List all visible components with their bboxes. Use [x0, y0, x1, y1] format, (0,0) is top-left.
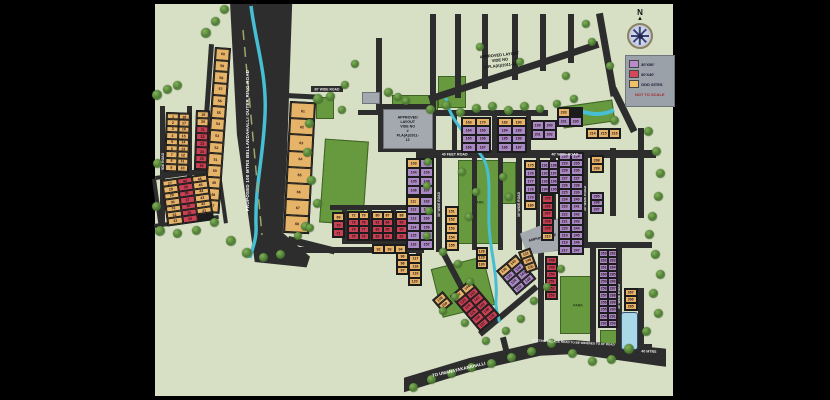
- plot-number: 27: [168, 181, 173, 186]
- plot-number: 289: [610, 300, 616, 304]
- plot-number: 87: [386, 213, 390, 217]
- plot-number: 178: [528, 187, 534, 191]
- plot-number: 118: [412, 264, 418, 268]
- plot-number: 91: [399, 234, 403, 238]
- plot-cell: 66: [286, 183, 311, 200]
- plot-number: 250: [549, 272, 555, 276]
- plot-number: 56: [217, 99, 221, 103]
- plot-cell: 76: [359, 233, 370, 240]
- plot-number: 72: [351, 213, 355, 217]
- tree-icon: [656, 169, 665, 178]
- plot-number: 189: [516, 129, 522, 133]
- plot-cell: 198: [549, 161, 558, 169]
- plot-cluster-q3: 205206207208209210: [541, 194, 554, 241]
- plot-cell: 206: [542, 203, 553, 211]
- plot-number: 18: [182, 115, 186, 119]
- plot-cell: 261: [599, 264, 608, 271]
- plot-cell: 215: [598, 129, 609, 138]
- compass-dial-icon: [627, 23, 653, 49]
- plot-cluster-m4: 151152153154155: [445, 206, 459, 251]
- tree-icon: [517, 315, 525, 323]
- plot-number: 190: [516, 120, 522, 124]
- plot-cell: 103: [407, 159, 420, 168]
- plot-number: 248: [549, 258, 555, 262]
- tree-icon: [654, 309, 663, 318]
- plot-cell: 111: [407, 197, 420, 206]
- tree-icon: [451, 293, 459, 301]
- plot-number: 202: [547, 132, 553, 136]
- plot-number: 244: [574, 226, 580, 230]
- plot-cell: 290: [608, 306, 617, 313]
- plot-cell: 153: [446, 224, 458, 233]
- plot-number: 92: [376, 247, 380, 251]
- tree-icon: [155, 226, 165, 236]
- plot-cell: 217: [559, 246, 571, 253]
- tree-icon: [570, 95, 578, 103]
- plot-number: 7: [170, 153, 172, 157]
- plot-cluster-n3: 199200201202: [531, 120, 557, 140]
- plot-number: 54: [215, 122, 219, 126]
- tree-icon: [520, 102, 529, 111]
- plot-cell: 120: [409, 278, 421, 286]
- road: [568, 14, 574, 63]
- plot-cell: 157: [420, 240, 433, 249]
- plot-cell: 194: [540, 185, 549, 193]
- plot-number: 104: [411, 170, 417, 174]
- plot-number: 168: [480, 137, 486, 141]
- plot-cell: 292: [599, 320, 608, 327]
- plot-cell: 55: [211, 106, 226, 119]
- plot-number: 263: [601, 251, 607, 255]
- plot-number: 259: [601, 279, 607, 283]
- plot-number: 150: [527, 264, 534, 270]
- plot-number: 82: [375, 227, 379, 231]
- plot-cell: 83: [372, 233, 383, 240]
- tree-icon: [527, 347, 536, 356]
- plot-cluster-v1: 267266265: [624, 288, 638, 311]
- plot-number: 165: [466, 137, 472, 141]
- tree-icon: [201, 28, 211, 38]
- plot-cell: 180: [525, 201, 536, 209]
- plot-number: 117: [412, 257, 418, 261]
- plot-number: 235: [574, 162, 580, 166]
- plot-number: 57: [218, 87, 222, 91]
- tree-icon: [306, 224, 314, 232]
- tree-icon: [505, 193, 513, 201]
- plot-cell: 200: [544, 121, 556, 130]
- tree-icon: [648, 212, 657, 221]
- plot-number: 96: [400, 254, 404, 258]
- plot-number: 162: [424, 199, 430, 203]
- plot-cluster-q1: 175176177178179180: [524, 160, 537, 210]
- plot-number: 15: [181, 134, 185, 138]
- plot-cell: 154: [446, 233, 458, 242]
- plot-number: 60: [220, 52, 224, 56]
- plot-number: 155: [449, 244, 455, 248]
- tree-icon: [642, 327, 651, 336]
- not-to-scale-text: NOT TO SCALE: [635, 92, 665, 97]
- plot-cell: 284: [608, 264, 617, 271]
- plot-number: 19: [201, 113, 205, 117]
- tree-icon: [606, 62, 614, 70]
- plot-number: 109: [424, 170, 430, 174]
- plot-number: 28: [169, 187, 174, 192]
- plot-number: 105: [411, 179, 417, 183]
- plot-number: 214: [590, 131, 596, 135]
- plot-number: 288: [610, 293, 616, 297]
- plot-number: 113: [411, 216, 417, 220]
- plot-number: 5: [171, 140, 173, 144]
- plot-number: 245: [574, 234, 580, 238]
- plot-cell: 10: [176, 165, 188, 172]
- plot-cell: 106: [407, 186, 420, 195]
- plot-cell: 52: [209, 141, 224, 154]
- plot-cluster-n4: 233231230: [557, 107, 583, 127]
- plot-cell: 244: [571, 225, 583, 232]
- plot-cell: 77: [359, 226, 370, 233]
- plot-cell: 58: [213, 71, 228, 84]
- plot-cell: 59: [214, 60, 229, 73]
- plot-cell: 74: [348, 226, 359, 233]
- plot-number: 33: [173, 219, 178, 224]
- plot-cell: 254: [599, 313, 608, 320]
- plot-cell: 218: [559, 239, 571, 246]
- plot-cell: 178: [525, 185, 536, 193]
- plot-cell: 50: [207, 165, 222, 178]
- compass-rose: N ▲: [625, 8, 655, 52]
- plot-number: 291: [610, 314, 616, 318]
- plot-cluster-n2: 183190184189185188186187: [497, 117, 527, 153]
- plot-cell: 71: [333, 229, 344, 237]
- plot-cell: 115: [407, 231, 420, 240]
- plot-cell: 82: [372, 226, 383, 233]
- plot-cell: 189: [512, 126, 526, 134]
- road-label: 30' WIDE ROAD: [517, 191, 521, 216]
- tree-icon: [313, 199, 322, 208]
- plot-number: 215: [601, 131, 607, 135]
- plot-number: 76: [362, 234, 366, 238]
- plot-cell: 34: [182, 215, 198, 223]
- plot-cell: 191: [540, 161, 549, 169]
- plot-number: 79: [362, 213, 366, 217]
- plot-number: 80: [375, 213, 379, 217]
- plot-cell: 60: [215, 48, 230, 61]
- plot-cell: 195: [549, 185, 558, 193]
- plot-number: 247: [574, 248, 580, 252]
- plot-number: 31: [171, 206, 176, 211]
- plot-number: 197: [551, 171, 557, 175]
- plot-number: 129: [479, 256, 485, 260]
- plot-cell: 176: [525, 169, 536, 177]
- plot-number: 68: [294, 222, 298, 226]
- plot-number: 71: [336, 231, 340, 235]
- plot-number: 69: [336, 215, 340, 219]
- legend-swatch: [629, 70, 639, 78]
- tree-icon: [461, 319, 469, 327]
- plot-number: 43: [200, 196, 205, 201]
- plot-number: 253: [549, 293, 555, 297]
- plot-number: 184: [502, 129, 508, 133]
- tree-icon: [423, 182, 431, 190]
- plot-cluster-c69: 697071: [332, 212, 345, 238]
- tree-icon: [210, 218, 219, 227]
- plot-number: 207: [545, 212, 551, 216]
- plot-cell: 54: [210, 118, 225, 131]
- plot-number: 51: [213, 157, 217, 161]
- plot-cell: 235: [571, 160, 583, 167]
- plot-number: 148: [524, 276, 531, 283]
- road: [590, 244, 596, 348]
- plot-number: 97: [400, 268, 404, 272]
- legend-label: 30'X40': [641, 72, 654, 77]
- plot-cell: 239: [571, 189, 583, 196]
- tree-icon: [294, 232, 302, 240]
- plot-cell: 236: [571, 167, 583, 174]
- plot-cell: 73: [348, 219, 359, 226]
- tree-icon: [163, 85, 172, 94]
- plot-number: 226: [562, 183, 568, 187]
- plot-number: 236: [574, 169, 580, 173]
- plot-cell: 253: [546, 292, 557, 299]
- plot-number: 39: [183, 185, 188, 190]
- plot-cell: 190: [512, 118, 526, 126]
- plot-cell: 233: [558, 108, 570, 117]
- plot-cell: 208: [542, 218, 553, 226]
- plot-number: 88: [399, 213, 403, 217]
- plot-number: 53: [215, 134, 219, 138]
- plot-cell: 255: [599, 306, 608, 313]
- tree-icon: [482, 337, 490, 345]
- plot-number: 44: [199, 189, 204, 194]
- plot-number: 62: [300, 125, 304, 129]
- tree-icon: [442, 101, 451, 110]
- plot-number: 45: [198, 183, 203, 188]
- plot-number: 195: [551, 187, 557, 191]
- plot-number: 11: [181, 159, 185, 163]
- plot-cell: 56: [212, 95, 227, 108]
- plot-number: 119: [412, 272, 418, 276]
- plot-cell: 72: [348, 212, 359, 219]
- plot-number: 85: [386, 227, 390, 231]
- tree-icon: [651, 250, 660, 259]
- plot-number: 192: [542, 171, 548, 175]
- plot-cell: 262: [599, 257, 608, 264]
- plot-cell: 130: [477, 261, 487, 268]
- plot-cell: 116: [407, 240, 420, 249]
- plot-cell: 92: [373, 245, 384, 253]
- plot-number: 229: [562, 162, 568, 166]
- tree-icon: [153, 159, 162, 168]
- plot-number: 67: [295, 206, 299, 210]
- plot-number: 64: [298, 157, 302, 161]
- plot-cell: 175: [525, 161, 536, 169]
- plot-number: 254: [601, 314, 607, 318]
- tree-icon: [568, 349, 577, 358]
- plot-cell: 80: [372, 212, 383, 219]
- tree-icon: [654, 192, 663, 201]
- plot-number: 17: [182, 121, 186, 125]
- plot-number: 233: [561, 110, 567, 114]
- plot-cell: 168: [476, 135, 490, 143]
- plot-number: 84: [386, 234, 390, 238]
- plot-cell: 85: [383, 226, 394, 233]
- plot-number: 139: [488, 313, 495, 320]
- tree-icon: [588, 357, 597, 366]
- plot-number: 103: [411, 161, 417, 165]
- plot-number: 41: [202, 208, 207, 213]
- site-layout-map: APPROVED LAYOUT VIDE NO # PLA(A)/2011-12…: [0, 0, 830, 400]
- not-to-scale-note: NOT TO SCALE: [629, 89, 671, 100]
- plot-number: 98: [400, 261, 404, 265]
- plot-cluster-a1: 118217316415514613712811910: [164, 112, 191, 172]
- plot-number: 196: [551, 179, 557, 183]
- plot-number: 30: [170, 200, 175, 205]
- plot-number: 70: [336, 223, 340, 227]
- plot-cell: 114: [407, 223, 420, 232]
- tree-icon: [652, 147, 661, 156]
- tree-icon: [499, 173, 507, 181]
- tree-icon: [211, 17, 220, 26]
- plot-number: 219: [562, 234, 568, 238]
- plot-number: 210: [545, 234, 551, 238]
- plot-number: 283: [610, 258, 616, 262]
- tree-icon: [582, 20, 590, 28]
- tree-icon: [426, 105, 435, 114]
- plot-cell: 267: [625, 289, 637, 296]
- plot-cell: 89: [396, 219, 407, 226]
- plot-cell: 265: [625, 303, 637, 310]
- plot-number: 258: [601, 286, 607, 290]
- plot-cell: 151: [446, 207, 458, 216]
- plot-number: 106: [411, 188, 417, 192]
- plot-number: 164: [466, 129, 472, 133]
- plot-cluster-r1: 2302342292352282362272372262382252392242…: [558, 152, 584, 255]
- plot-number: 120: [412, 279, 418, 283]
- plot-number: 151: [449, 209, 455, 213]
- plot-number: 32: [172, 212, 177, 217]
- plot-cell: 210: [542, 233, 553, 241]
- tree-icon: [536, 105, 544, 113]
- plot-number: 65: [297, 173, 301, 177]
- plot-cell: 240: [571, 196, 583, 203]
- tree-icon: [530, 297, 538, 305]
- plot-cluster-d3: 128129130: [476, 247, 488, 269]
- plot-cell: 109: [420, 168, 433, 177]
- plot-number: 34: [188, 217, 193, 222]
- plot-cell: 257: [599, 292, 608, 299]
- plot-number: 175: [528, 163, 534, 167]
- tree-icon: [425, 207, 433, 215]
- plot-number: 128: [479, 249, 485, 253]
- plot-number: 46: [197, 177, 202, 182]
- plot-number: 130: [479, 262, 485, 266]
- plot-number: 40: [183, 179, 188, 184]
- road: [430, 14, 436, 105]
- plot-cell: 104: [407, 168, 420, 177]
- plot-number: 183: [502, 120, 508, 124]
- plot-cell: 26: [195, 162, 207, 170]
- tree-icon: [504, 106, 513, 115]
- tree-icon: [476, 43, 484, 51]
- plot-cell: 238: [571, 182, 583, 189]
- plot-cell: 216: [609, 129, 620, 138]
- plot-number: 218: [562, 241, 568, 245]
- road: [472, 158, 477, 250]
- plot-cell: 285: [608, 271, 617, 278]
- tree-icon: [173, 229, 182, 238]
- plot-number: 73: [351, 220, 355, 224]
- road: [610, 148, 616, 216]
- plot-cell: 196: [549, 177, 558, 185]
- tree-icon: [557, 265, 565, 273]
- tree-icon: [394, 93, 402, 101]
- tree-icon: [173, 81, 182, 90]
- tree-icon: [610, 116, 619, 125]
- plot-number: 169: [480, 129, 486, 133]
- plot-cell: 214: [587, 129, 598, 138]
- plot-number: 74: [351, 227, 355, 231]
- tree-icon: [305, 119, 314, 128]
- plot-cell: 53: [209, 130, 224, 143]
- plot-cell: 229: [559, 160, 571, 167]
- plot-number: 205: [545, 197, 551, 201]
- plot-cell: 91: [396, 233, 407, 240]
- plot-number: 180: [528, 203, 534, 207]
- plot-cell: 93: [384, 245, 395, 253]
- plot-number: 186: [502, 145, 508, 149]
- plot-cluster-s2: 295296297: [590, 192, 604, 214]
- plot-cell: 117: [409, 255, 421, 263]
- tree-icon: [466, 278, 474, 286]
- tree-icon: [192, 226, 201, 235]
- plot-number: 55: [216, 111, 220, 115]
- legend-item: 30'X50': [629, 59, 671, 69]
- plot-cell: 286: [608, 278, 617, 285]
- plot-number: 20: [201, 120, 205, 124]
- plot-number: 208: [545, 219, 551, 223]
- tree-icon: [338, 106, 346, 114]
- plot-number: 265: [628, 304, 634, 308]
- plot-cell: 179: [525, 193, 536, 201]
- tree-icon: [303, 148, 312, 157]
- compass-needle-icon: ▲: [625, 17, 655, 21]
- plot-cell: 164: [462, 126, 476, 134]
- plot-cell: 159: [420, 223, 433, 232]
- plot-cell: 98: [397, 260, 408, 267]
- plot-number: 216: [612, 131, 618, 135]
- plot-number: 239: [574, 191, 580, 195]
- plot-cell: 197: [549, 169, 558, 177]
- park-label: PARK: [573, 303, 583, 307]
- plot-cell: 221: [559, 218, 571, 225]
- plot-number: 260: [601, 272, 607, 276]
- road: [638, 288, 644, 346]
- plot-number: 93: [387, 247, 391, 251]
- road: [498, 158, 503, 250]
- plot-number: 24: [199, 149, 203, 153]
- plot-cell: 201: [532, 130, 544, 139]
- plot-cell: 237: [571, 175, 583, 182]
- plot-number: 94: [398, 247, 402, 251]
- plot-number: 221: [562, 219, 568, 223]
- plot-number: 26: [199, 164, 203, 168]
- plot-number: 242: [574, 212, 580, 216]
- plot-cell: 245: [571, 232, 583, 239]
- plot-cluster-m3: 117118119120: [408, 254, 422, 286]
- plot-number: 61: [300, 109, 304, 113]
- plot-cell: 242: [571, 211, 583, 218]
- plot-cell: 192: [540, 169, 549, 177]
